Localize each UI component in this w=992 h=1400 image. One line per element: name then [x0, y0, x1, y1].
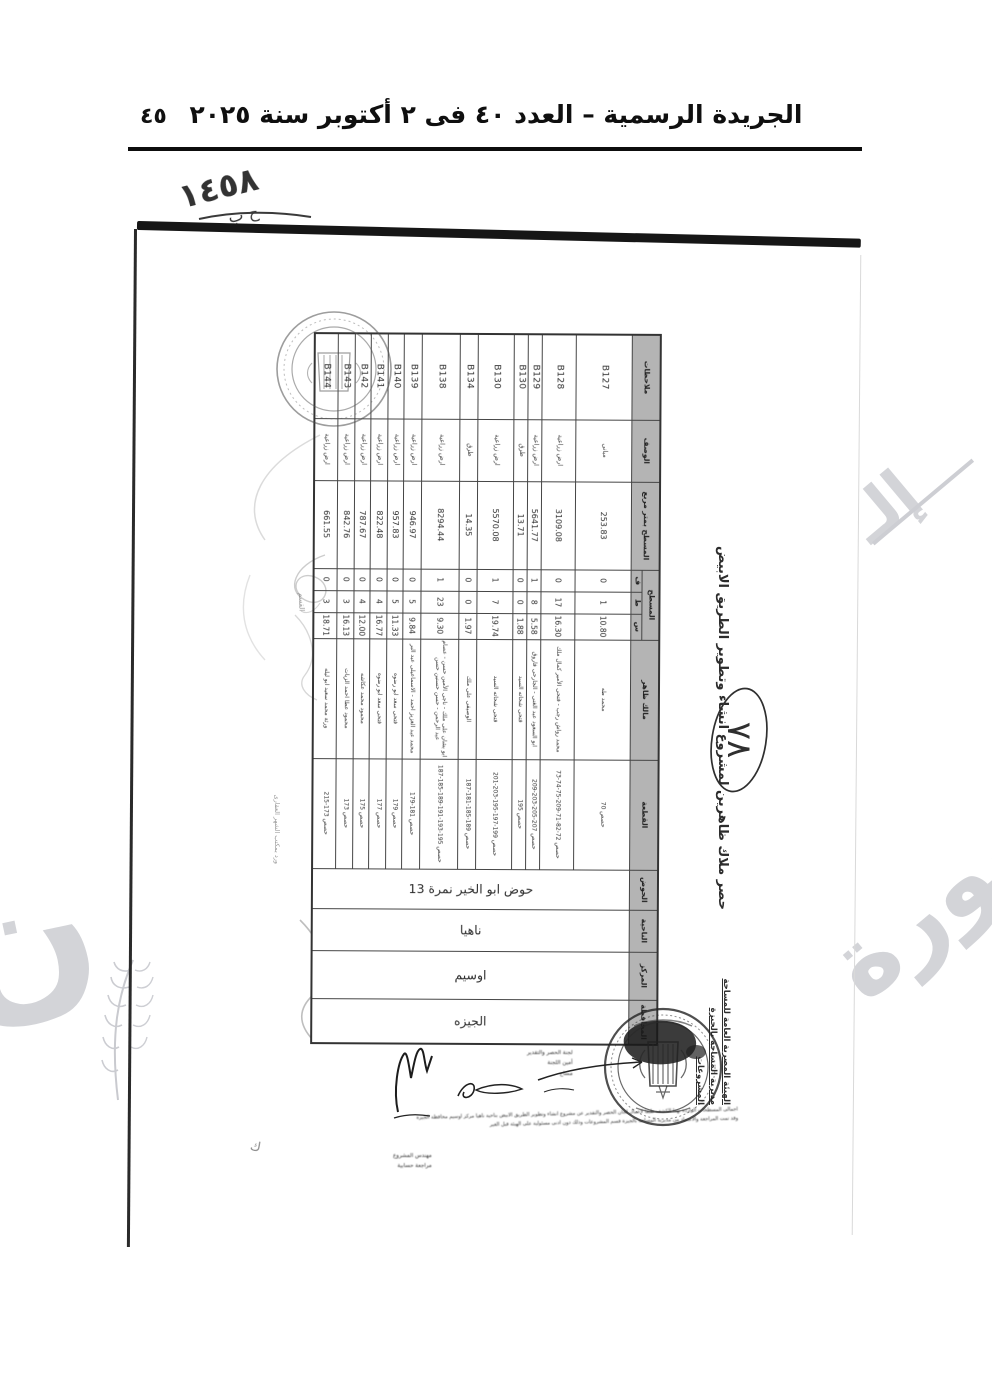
cell-s: 18.71 [313, 612, 337, 638]
footer-label: مهندس المشروع [393, 1152, 432, 1162]
cell-area: 253.83 [576, 481, 632, 569]
cell-plots: حصص 173 [336, 758, 354, 868]
cell-area: 946.97 [404, 481, 422, 569]
cell-code: B134 [460, 334, 478, 419]
header-sahm: س [631, 614, 642, 640]
header-rule [128, 147, 862, 151]
cell-area: 822.48 [371, 480, 388, 568]
cell-k: 0 [459, 591, 477, 613]
cell-f: 1 [478, 569, 514, 591]
cell-owner: محمود عطا احمد الزيات [337, 638, 355, 758]
cell-plots: حصص 72-82-71-209-75-74-73 [540, 759, 575, 869]
cell-f: 0 [371, 568, 388, 590]
cell-k: 5 [387, 591, 403, 613]
cell-area: 13.71 [514, 481, 528, 569]
gazette-page: { "gazette": { "page_number": "٤٥", "hea… [0, 0, 992, 1400]
cell-plots: حصص 195 [512, 759, 527, 869]
cell-k: 1 [575, 591, 631, 613]
cell-code: B128 [542, 334, 576, 419]
cell-desc: طرق [514, 419, 528, 481]
handwritten-underline [195, 205, 315, 229]
cell-area: 5570.08 [478, 481, 514, 569]
watermark-text: صورة [805, 755, 992, 1022]
cell-area: 5641.77 [528, 481, 542, 569]
cell-k: 3 [313, 590, 337, 612]
cell-k: 3 [337, 590, 354, 612]
cell-plots: حصص 195-193-191-189-185-187 [420, 759, 459, 869]
cell-f: 0 [542, 569, 576, 591]
cell-plots: حصص 199-197-195-203-201 [476, 759, 513, 869]
cell-plots: حصص 173-215 [312, 758, 337, 868]
cell-code: B129 [528, 334, 542, 419]
cell-k: 7 [477, 591, 513, 613]
header-owner: مالك ظاهر [631, 640, 660, 760]
cell-owner: محمود محمد عكاشه [354, 638, 371, 758]
cell-owner: فتحى شحاته السيد [477, 639, 514, 759]
header-basin: الحوض [630, 870, 658, 910]
cell-code: B127 [576, 334, 632, 419]
cell-k: 4 [370, 590, 387, 612]
cell-s: 11.33 [387, 613, 403, 639]
stamp-label: أمين اللجنة [527, 1058, 573, 1068]
corner-handwritten-letter: ك [249, 1139, 262, 1156]
header-feddan: ف [632, 570, 643, 592]
signature-left [388, 1040, 448, 1120]
cell-desc: مبانى [576, 419, 632, 481]
cell-owner: محمد رواش رجب - فتحى الأمير كمال ملك [541, 639, 576, 759]
wheat-branch-icon [88, 955, 158, 1105]
cell-area: 842.76 [338, 480, 355, 568]
cell-plots: حصص 179 [386, 759, 403, 869]
cell-plots: حصص 177 [369, 758, 387, 868]
table-header: المحافظة المركز الناحية الحوض القطعة مال… [629, 335, 661, 1045]
cell-s: 1.97 [459, 613, 477, 639]
header-area-m2: المسطح بمتر مربع [632, 482, 660, 570]
cell-code: B139 [404, 334, 422, 419]
rotated-table-container: المحافظة المركز الناحية الحوض القطعة مال… [312, 332, 662, 1044]
cell-plots: حصص 175 [353, 758, 370, 868]
cell-owner: فتحى شحاته السيد [513, 639, 528, 759]
gazette-header-title: الجريدة الرسمية – العدد ٤٠ فى ٢ أكتوبر س… [130, 100, 862, 129]
cell-area: 14.35 [460, 481, 478, 569]
signature-middle [448, 1070, 528, 1110]
cell-f: 0 [514, 569, 528, 591]
location-cell-basin: حوض ابو الخير نمرة 13 [312, 868, 630, 910]
location-cell-center: اوسيم [311, 950, 629, 1000]
margin-handwritten-note: ورد بمكتب الشهر العقارى [273, 694, 281, 864]
cell-area: 787.67 [355, 480, 371, 568]
cell-s: 16.77 [370, 612, 387, 638]
cell-k: 0 [513, 591, 527, 613]
cell-desc: ارض زراعية [528, 419, 542, 481]
cell-owner: الوصيفى على ملك [459, 639, 478, 759]
header-district: الناحية [630, 910, 658, 952]
cell-plots: حصص 189-185-181-187 [458, 759, 477, 869]
header-area-group: المسطح [642, 570, 659, 640]
footer-left-labels: مهندس المشروع مراجعة حسابية [393, 1152, 432, 1172]
cell-f: 0 [314, 568, 338, 590]
header-description: الوصف [632, 420, 660, 482]
cell-s: 9.84 [403, 613, 421, 639]
circled-number-annotation: ٧٨ [703, 678, 775, 802]
cell-owner: محمد عبد العزيز احمد - الاسماعيلى عبد ال… [403, 639, 422, 759]
cell-k: 23 [421, 591, 459, 613]
cell-f: 0 [388, 568, 404, 590]
location-text-center: اوسيم [455, 967, 487, 982]
table-row: الجيزهاوسيمناهياحوض ابو الخير نمرة 13حصص… [573, 334, 633, 1044]
cell-owner: فتحى سعد ابو رضوه [370, 638, 388, 758]
cell-f: 0 [460, 569, 478, 591]
round-stamp-top-icon [268, 303, 400, 435]
cell-s: 16.30 [541, 613, 575, 639]
stamp-label: مساح [527, 1069, 573, 1079]
cell-code: B130 [514, 334, 528, 419]
cell-f: 1 [528, 569, 542, 591]
cell-s: 19.74 [477, 613, 513, 639]
cell-k: 8 [527, 591, 541, 613]
paper-right-edge [852, 255, 862, 1235]
cell-k: 4 [354, 590, 370, 612]
cell-area: 661.55 [314, 480, 338, 568]
cell-plots: حصص 207-205-203-209 [526, 759, 541, 869]
cell-f: 1 [422, 569, 460, 591]
cell-area: 957.83 [388, 480, 404, 568]
cell-s: 5.58 [527, 613, 541, 639]
table-body: الجيزهاوسيمناهياحوض ابو الخير نمرة 13حصص… [311, 333, 633, 1045]
cell-code: B130 [478, 334, 514, 419]
cell-desc: ارض زراعية [404, 419, 422, 481]
cell-s: 16.13 [337, 612, 354, 638]
cell-k: 17 [541, 591, 575, 613]
cell-owner: محمد طه [575, 639, 632, 759]
circled-number-text: ٧٨ [719, 722, 759, 759]
cell-desc: ارض زراعية [478, 419, 514, 481]
cell-s: 10.80 [575, 613, 631, 639]
survey-table: المحافظة المركز الناحية الحوض القطعة مال… [310, 332, 662, 1046]
cell-f: 0 [404, 569, 422, 591]
cell-owner: ابو بشان على ملك - ناجى الأمين حسن - عصا… [421, 639, 460, 759]
header-qirat: ط [631, 592, 642, 614]
stamp-label: لجنة الحصر والتقدير [527, 1048, 573, 1058]
cell-plots: حصص 70 [574, 759, 631, 869]
cell-f: 0 [338, 568, 355, 590]
cell-desc: ارض زراعية [422, 419, 460, 481]
location-cell-district: ناهيا [312, 908, 630, 952]
footer-stamp-labels: لجنة الحصر والتقدير أمين اللجنة مساح [527, 1048, 573, 1079]
cell-area: 8294.44 [422, 481, 460, 569]
location-text-district: ناهيا [460, 922, 482, 937]
cell-owner: ابو السعود عبد الغنى - الجارحى فاروق [527, 639, 542, 759]
cell-f: 0 [355, 568, 371, 590]
header-plot: القطعة [630, 760, 659, 870]
cell-desc: طرق [460, 419, 478, 481]
location-text-governorate: الجيزه [454, 1014, 487, 1029]
cell-k: 5 [403, 591, 421, 613]
cell-owner: فتحى سعد ابو رضوه [387, 639, 404, 759]
cell-s: 1.88 [513, 613, 527, 639]
cell-desc: ارض زراعية [542, 419, 576, 481]
cell-plots: حصص 181-179 [402, 759, 421, 869]
watermark-diagonal-line [872, 459, 974, 546]
location-text-basin: حوض ابو الخير نمرة 13 [409, 881, 534, 897]
header-notes: ملاحظات [632, 335, 660, 420]
cell-f: 0 [576, 569, 632, 591]
location-cell-governorate: الجيزه [311, 998, 629, 1045]
cell-area: 3109.08 [542, 481, 576, 569]
footer-label: مراجعة حسابية [393, 1162, 432, 1172]
cell-s: 12.00 [354, 612, 370, 638]
header-center: المركز [629, 952, 657, 1000]
cell-s: 9.30 [421, 613, 459, 639]
document-title: حصر ملاك ظاهرين لمشروع انشاء وتطوير الطر… [704, 410, 730, 910]
cell-code: B138 [422, 334, 460, 419]
cell-owner: ورثة محمد سعيد ابو ليله [313, 638, 338, 758]
